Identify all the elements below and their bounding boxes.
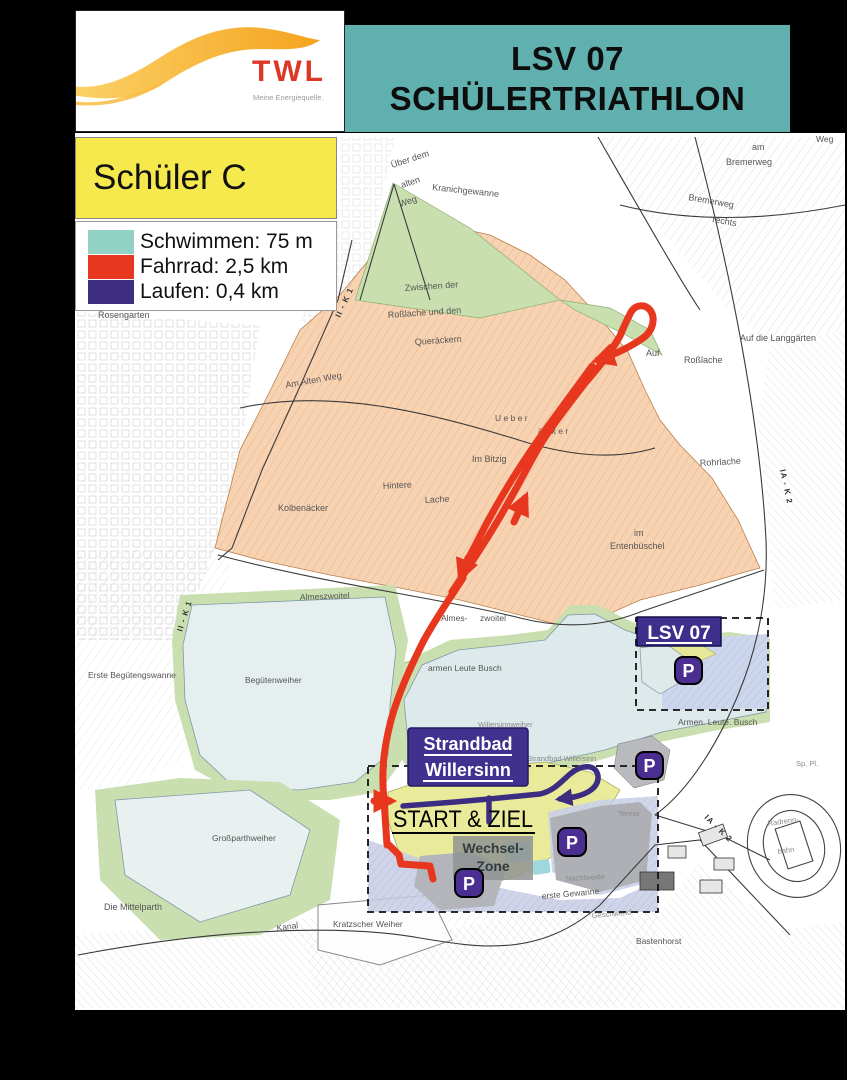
swim-color-swatch [88,230,134,254]
strandbad-line1: Strandbad [423,734,512,754]
map-label-grossparthweiher: Großparthweiher [212,833,276,843]
bike-label: Fahrrad: 2,5 km [134,255,288,279]
map-label-tennis: Tennis [618,809,640,818]
map-label-auf-die-langgaerten: Auf die Langgärten [740,333,816,343]
run-label: Laufen: 0,4 km [134,280,279,304]
map-label-hintere: Hintere [383,479,412,491]
legend-row-laufen: Laufen: 0,4 km [88,279,336,304]
parking-letter: P [566,833,578,853]
map-label-bremerweg2: Bremerweg [726,157,772,167]
map-label-armen-leute-busch-e: Armen. Leute. Busch [678,717,758,727]
parking-icon-lsv07: P [675,657,702,684]
lake-beguetenweiher [183,597,396,790]
map-label-rosengarten: Rosengarten [98,310,150,320]
wechselzone-line1: Wechsel- [462,840,524,856]
map-label-strandbad-klein: Strandbad Willersinn [527,754,596,763]
map-label-almes: Almes- [441,613,468,623]
twl-logo-panel: TWL Meine Energiequelle. [75,10,345,132]
twl-brand: TWL [252,55,326,89]
map-label-almeszwoitel: Almeszwoitel [300,590,350,602]
parking-icon-mid: P [558,828,586,856]
map-label-armen-leute-busch-w: armen Leute Busch [428,663,502,673]
twl-tagline: Meine Energiequelle. [253,93,323,102]
map-label-die-mittelparth: Die Mittelparth [104,902,162,912]
parking-icon-start: P [455,869,483,897]
map-label-lache: Lache [425,494,450,505]
map-label-auf: Auf [646,348,660,358]
map-label-beguetenweiher: Begütenweiher [245,675,302,685]
swim-label: Schwimmen: 75 m [134,230,313,254]
run-color-swatch [88,280,134,304]
map-label-rosslache: Roßlache [684,355,723,365]
title-line1: LSV 07 [345,39,790,79]
map-label-kolbenaecker: Kolbenäcker [278,503,328,513]
legend-row-fahrrad: Fahrrad: 2,5 km [88,254,336,279]
map-label-erste-beguetengswanne: Erste Begütengswanne [88,670,176,680]
map-label-zwoitel: zwoitel [480,613,506,623]
map-label-weg-ne: Weg [816,134,834,144]
legend-row-schwimmen: Schwimmen: 75 m [88,229,336,254]
parking-letter: P [643,756,655,776]
map-label-sp-pl: Sp. Pl. [796,759,818,768]
category-label: Schüler C [76,158,247,198]
map-label-ueber-sp: U e b e r [495,413,528,423]
start-ziel-label: START & ZIEL [393,806,533,833]
lsv07-label: LSV 07 [647,623,710,644]
pool-small [531,859,551,875]
bike-color-swatch [88,255,134,279]
legend: Schwimmen: 75 m Fahrrad: 2,5 km Laufen: … [75,221,337,311]
strandbad-line2: Willersinn [425,760,511,780]
map-label-entenbueschel: Entenbüschel [610,541,665,551]
title-banner: LSV 07 SCHÜLERTRIATHLON [345,25,790,132]
category-badge: Schüler C [75,137,337,219]
map-label-im: im [634,528,644,538]
parking-letter: P [682,661,694,681]
map-label-kratzscher-weiher: Kratzscher Weiher [333,919,403,929]
title-line2: SCHÜLERTRIATHLON [345,79,790,119]
map-label-am: am [752,142,765,152]
parking-letter: P [463,874,475,894]
map-label-im-bitzig: Im Bitzig [472,454,507,464]
parking-icon-east: P [636,752,663,779]
poster: TWL Meine Energiequelle. LSV 07 SCHÜLERT… [0,0,847,1080]
map-label-bastenhorst: Bastenhorst [636,936,682,946]
